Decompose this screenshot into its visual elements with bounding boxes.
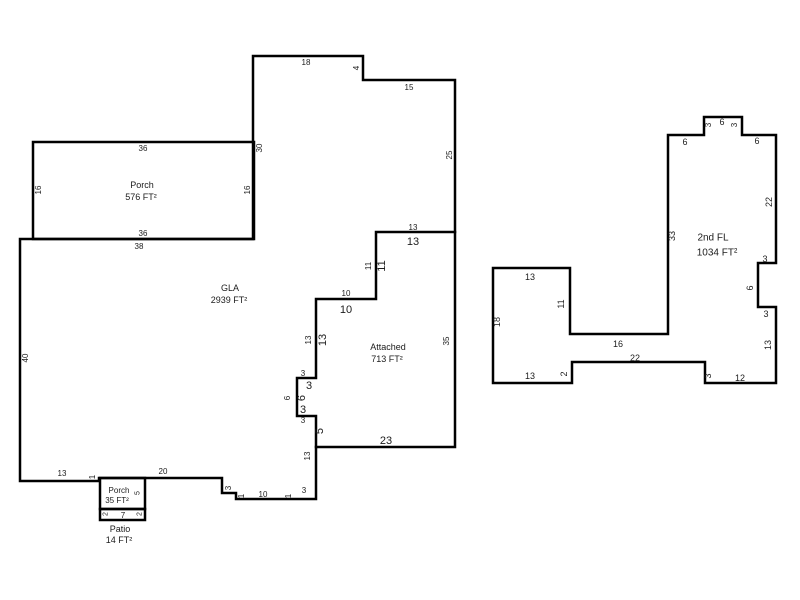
dimension-label: 18 [302, 58, 311, 67]
dimension-label: 6 [754, 136, 759, 146]
dimension-label: 10 [259, 490, 268, 499]
dimension-label: 33 [667, 231, 677, 241]
region-area-patio: 14 FT² [106, 535, 133, 545]
floor-plan-canvas: 184152530361616Porch576 FT²3638131311111… [0, 0, 800, 600]
dimension-label: 11 [364, 261, 373, 270]
dimension-label: 23 [380, 435, 392, 447]
dimension-label: 36 [139, 144, 148, 153]
main-floor-outline [20, 56, 455, 499]
dimension-label: 35 [442, 336, 451, 345]
dimension-label: 22 [630, 353, 640, 363]
dimension-label: 22 [764, 197, 774, 207]
dimension-label: 38 [135, 242, 144, 251]
dimension-label: 1 [88, 474, 97, 479]
region-area-gla: 2939 FT² [211, 295, 248, 305]
dimension-label: 3 [301, 369, 306, 378]
dimension-label: 3 [762, 254, 767, 264]
dimension-label: 40 [21, 353, 30, 362]
dimension-label: 6 [745, 285, 755, 290]
dimension-label: 6 [283, 395, 292, 400]
dimension-label: 2 [102, 512, 109, 516]
dimension-label: 7 [121, 511, 126, 520]
region-area-small-porch: 35 FT² [105, 496, 129, 505]
dimension-label: 30 [255, 143, 264, 152]
region-area-2nd-fl: 1034 FT² [697, 248, 738, 259]
dimension-label: 3 [306, 380, 312, 392]
dimension-label: 16 [243, 185, 252, 194]
dimension-label: 13 [525, 272, 535, 282]
dimension-label: 12 [735, 373, 745, 383]
dimension-label: 16 [613, 339, 623, 349]
dimension-label: 6 [296, 395, 308, 401]
dimension-label: 10 [342, 289, 351, 298]
region-label-patio: Patio [110, 524, 131, 534]
region-label-porch: Porch [130, 180, 154, 190]
dimension-label: 2 [136, 512, 143, 516]
dimension-label: 15 [405, 83, 414, 92]
dimension-label: 3 [730, 122, 739, 127]
porch-outline [33, 142, 254, 239]
dimension-label: 10 [340, 304, 352, 316]
dimension-label: 36 [139, 229, 148, 238]
dimension-label: 13 [407, 236, 419, 248]
region-label-gla: GLA [221, 283, 239, 293]
dimension-label: 13 [525, 371, 535, 381]
dimension-label: 16 [34, 185, 43, 194]
dimension-label: 13 [58, 469, 67, 478]
dimension-label: 6 [682, 137, 687, 147]
dimension-label: 1 [237, 493, 246, 498]
dimension-label: 1 [284, 493, 293, 498]
region-area-attached: 713 FT² [371, 354, 403, 364]
dimension-label: 4 [352, 65, 361, 70]
dimension-label: 3 [763, 309, 768, 319]
region-area-porch: 576 FT² [125, 192, 157, 202]
dimension-label: 6 [719, 117, 724, 127]
dimension-label: 3 [300, 404, 306, 416]
dimension-label: 3 [224, 485, 233, 490]
dimension-label: 18 [492, 317, 502, 327]
floor-plan-sketch: 184152530361616Porch576 FT²3638131311111… [0, 0, 800, 600]
dimension-label: 11 [376, 260, 388, 271]
dimension-label: 5 [314, 428, 326, 434]
region-label-small-porch: Porch [109, 486, 130, 495]
dimension-label: 13 [317, 334, 329, 346]
region-label-2nd-fl: 2nd FL [697, 233, 729, 244]
dimension-label: 13 [409, 223, 418, 232]
dimension-label: 11 [556, 299, 566, 308]
dimension-label: 13 [304, 335, 313, 344]
dimension-label: 20 [159, 467, 168, 476]
dimension-label: 5 [134, 491, 141, 495]
dimension-label: 3 [301, 416, 306, 425]
dimension-label: 3 [703, 373, 713, 378]
dimension-label: 13 [303, 451, 312, 460]
dimension-label: 13 [763, 340, 773, 350]
dimension-label: 3 [704, 122, 713, 127]
region-label-attached: Attached [370, 342, 406, 352]
dimension-label: 3 [302, 486, 307, 495]
dimension-label: 25 [445, 150, 454, 159]
dimension-label: 2 [559, 371, 569, 376]
